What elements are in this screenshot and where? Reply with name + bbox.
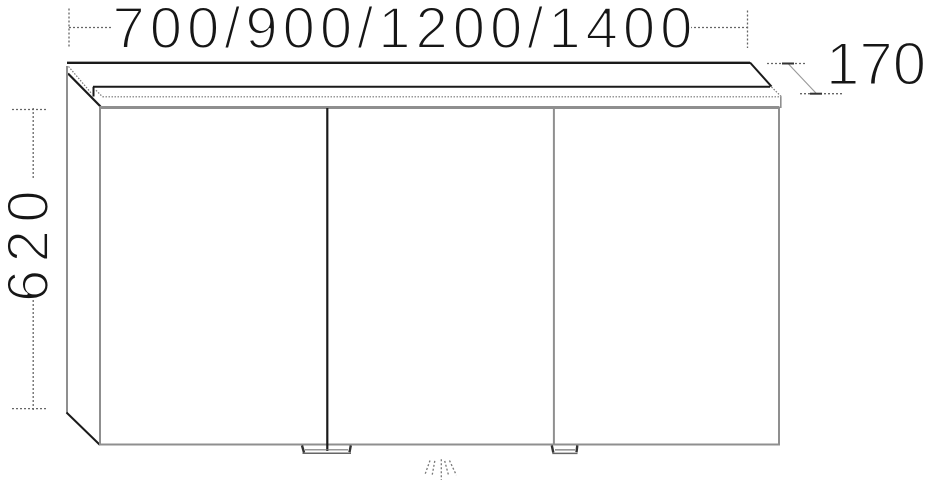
svg-text:170: 170: [826, 31, 926, 98]
svg-text:700/900/1200/1400: 700/900/1200/1400: [113, 0, 698, 61]
svg-text:620: 620: [0, 183, 61, 302]
